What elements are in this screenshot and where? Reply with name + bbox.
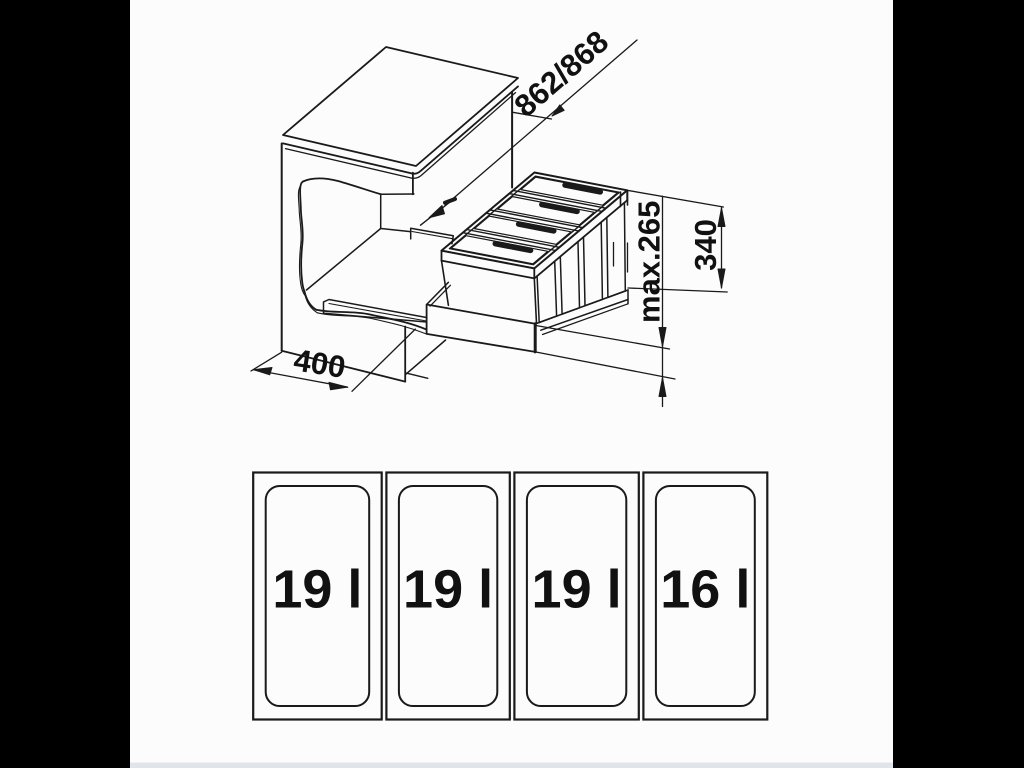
svg-text:19 l: 19 l [272,560,362,620]
svg-text:max.265: max.265 [632,201,667,323]
svg-text:340: 340 [688,219,723,271]
svg-text:16 l: 16 l [660,560,750,620]
svg-text:19 l: 19 l [532,560,622,620]
svg-text:19 l: 19 l [403,560,493,620]
